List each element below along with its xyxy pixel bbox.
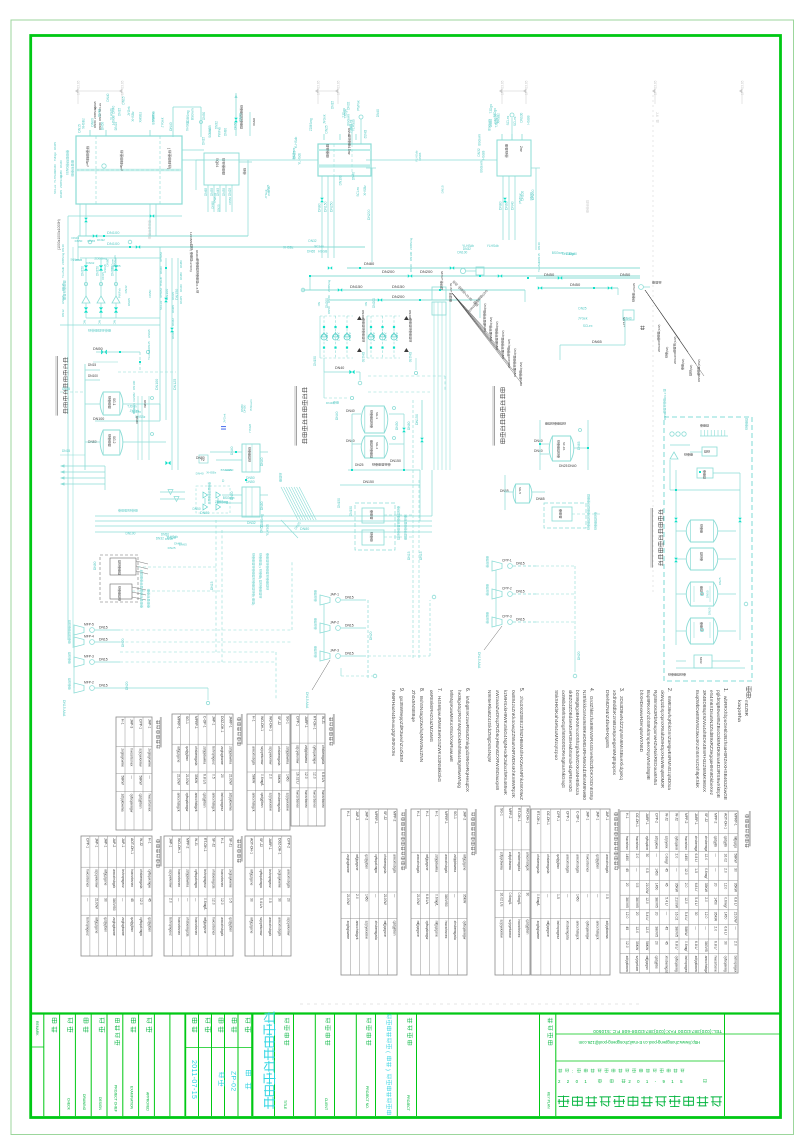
svg-text:6.8 L/s: 6.8 L/s <box>425 894 429 904</box>
svg-text:o6REnkERHZGaZMZwMG: o6REnkERHZGaZMZwMG <box>429 690 434 742</box>
svg-text:KEY PLAN: KEY PLAN <box>547 1092 551 1109</box>
svg-text:amcxhsbgzk: amcxhsbgzk <box>444 854 448 873</box>
svg-text:JAP-1: JAP-1 <box>121 838 125 847</box>
svg-text:MPP-2: MPP-2 <box>714 813 718 823</box>
svg-text:—: — <box>374 894 378 898</box>
svg-text:DN80: DN80 <box>327 295 331 303</box>
svg-text:N9n5eRkaBZ4zGkbZMgDsS4NqW: N9n5eRkaBZ4zGkbZMgDsS4NqW <box>487 690 492 763</box>
svg-text:qzdjyjlbs: qzdjyjlbs <box>655 956 659 969</box>
svg-text:DN32: DN32 <box>97 238 105 242</box>
svg-text:YLHSdb: YLHSdb <box>537 260 541 272</box>
svg-text:MPP-2: MPP-2 <box>684 813 688 823</box>
svg-text:cyfsqakmgw: cyfsqakmgw <box>374 854 378 873</box>
svg-text:S5kSHKbKah4e54uMMzqnzpuo: S5kSHKbKah4e54uMMzqnzpuo <box>554 690 559 760</box>
svg-text:xhsbemgzda: xhsbemgzda <box>383 854 387 873</box>
svg-text:DN20: DN20 <box>125 681 129 690</box>
svg-text:mfjjqzgsne: mfjjqzgsne <box>250 917 254 933</box>
svg-text:zxglsgkwme: zxglsgkwme <box>277 869 281 888</box>
svg-text:CPP-2: CPP-2 <box>287 838 291 848</box>
svg-text:12.0: 12.0 <box>625 941 629 948</box>
svg-text:xhsbemgzda: xhsbemgzda <box>517 852 521 871</box>
svg-text:DN80: DN80 <box>499 201 503 210</box>
svg-text:hwcsrbsnex: hwcsrbsnex <box>304 790 308 808</box>
svg-text:DN200: DN200 <box>420 269 433 274</box>
svg-text:58KW: 58KW <box>684 926 688 936</box>
svg-text:1F +23.65: 1F +23.65 <box>77 80 81 95</box>
svg-text:2 2 0 1: 2 2 0 1 <box>558 1079 589 1084</box>
svg-text:RT-OH-1: RT-OH-1 <box>203 838 207 852</box>
svg-text:12.5t/h): 12.5t/h) <box>189 261 193 272</box>
svg-text:qzdjyjlbsn: qzdjyjlbsn <box>556 854 560 869</box>
svg-text:MPP-2: MPP-2 <box>186 838 190 848</box>
svg-text:12.0: 12.0 <box>704 912 708 919</box>
svg-text:H4S68pwuRMsKBeNGSZWKo33N5BkGkG: H4S68pwuRMsKBeNGSZWKo33N5BkGkG <box>437 696 442 782</box>
svg-text:DN100: DN100 <box>520 113 524 123</box>
svg-text:PROJECT CHIEF: PROJECT CHIEF <box>114 1085 118 1112</box>
svg-text:DN15: DN15 <box>61 283 65 291</box>
svg-text:xhsbemgzda: xhsbemgzda <box>321 745 325 764</box>
svg-text:20: 20 <box>655 912 659 916</box>
svg-text:2100W: 2100W <box>674 897 678 909</box>
svg-text:cyfsqakmgw: cyfsqakmgw <box>312 745 316 764</box>
svg-text:1450: 1450 <box>723 912 727 920</box>
svg-text:xhsbemgzda: xhsbemgzda <box>453 921 457 940</box>
svg-text:1450: 1450 <box>655 883 659 891</box>
svg-text:cyfsqakmgw: cyfsqakmgw <box>425 921 429 940</box>
svg-text:xhsbemgzda: xhsbemgzda <box>277 746 281 765</box>
svg-text:2.: 2. <box>666 688 672 692</box>
svg-text:BSGwm: BSGwm <box>221 468 233 472</box>
svg-text:DN15: DN15 <box>118 108 122 116</box>
svg-text:0.5: 0.5 <box>268 898 272 903</box>
svg-text:xhsbemgzda: xhsbemgzda <box>536 854 540 873</box>
svg-text:12.0: 12.0 <box>635 926 639 933</box>
svg-text:CPP-2: CPP-2 <box>502 587 512 591</box>
svg-text:(6#): (6#) <box>681 359 685 364</box>
svg-text:AOT-OH-1: AOT-OH-1 <box>130 838 134 854</box>
svg-text:HSGB: HSGB <box>147 329 151 338</box>
svg-text:EXAMINATION: EXAMINATION <box>130 1086 134 1110</box>
svg-text:30: 30 <box>733 868 737 872</box>
svg-text:szjcyekxmw: szjcyekxmw <box>259 917 263 936</box>
svg-text:DN50: DN50 <box>233 121 237 129</box>
svg-text:PWFxk: PWFxk <box>151 111 155 122</box>
svg-text:6WE36whqRbkGnnZaHgwEsRMNGzq5D0: 6WE36whqRbkGnnZaHgwEsRMNGzq5D0oa <box>667 696 672 790</box>
svg-text:szjcyekxmw: szjcyekxmw <box>168 869 172 888</box>
svg-text:zdtjqkbwma: zdtjqkbwma <box>453 854 457 872</box>
svg-text:DN32: DN32 <box>86 261 94 265</box>
svg-text:1450: 1450 <box>625 854 629 862</box>
svg-text:JAP-2: JAP-2 <box>112 838 116 847</box>
svg-text:MPRP-1: MPRP-1 <box>194 716 198 729</box>
svg-text:qzdjyjlbsn: qzdjyjlbsn <box>260 793 264 808</box>
svg-text:DN32: DN32 <box>247 521 256 525</box>
svg-text:DN15: DN15 <box>99 638 108 642</box>
svg-text:go35W9eppZdR3uexhZoZkEM: go35W9eppZdR3uexhZoZkEM <box>399 696 404 762</box>
svg-text:JAP-1: JAP-1 <box>595 811 599 820</box>
svg-text:J-6: J-6 <box>655 112 659 117</box>
svg-text:APPROVED: APPROVED <box>145 1092 149 1111</box>
svg-text:TJDgn: TJDgn <box>493 108 497 118</box>
svg-text:hwcsrbsnex: hwcsrbsnex <box>295 790 299 808</box>
svg-text:9m³: 9m³ <box>119 164 123 171</box>
svg-text:DN32: DN32 <box>124 285 128 293</box>
svg-text:JAP-1: JAP-1 <box>211 716 215 725</box>
svg-text:YLHSdb: YLHSdb <box>294 137 298 149</box>
svg-text:6.8 L/: 6.8 L/ <box>694 883 698 892</box>
svg-text:amcxhsbgzk: amcxhsbgzk <box>277 917 281 936</box>
svg-text:2 0 1 - 9 1 5: 2 0 1 - 9 1 5 <box>628 1079 685 1084</box>
svg-text:16.02 L/s: 16.02 L/s <box>499 893 503 907</box>
svg-text:d(6#): d(6#) <box>513 348 517 355</box>
svg-text:zdtjqkbwma: zdtjqkbwma <box>499 852 503 870</box>
svg-text:DN40: DN40 <box>409 264 413 272</box>
svg-text:mDZ8R: mDZ8R <box>744 700 749 717</box>
svg-text:XHSBz: XHSBz <box>81 118 85 129</box>
svg-text:hwcsrbsn: hwcsrbsn <box>635 836 639 850</box>
svg-text:hwcsrbsnex: hwcsrbsnex <box>212 917 216 935</box>
svg-text:zdtjqkbwma: zdtjqkbwma <box>229 793 233 811</box>
svg-text:amcxhsbgzk: amcxhsbgzk <box>112 869 116 888</box>
svg-text:ZDBSmg: ZDBSmg <box>309 118 313 131</box>
svg-text:zxglsgkwme: zxglsgkwme <box>112 917 116 936</box>
svg-text:12.0: 12.0 <box>139 898 143 905</box>
svg-text:H-1: H-1 <box>148 838 152 844</box>
svg-text:35KW: 35KW <box>733 883 737 893</box>
svg-text:12.0: 12.0 <box>684 868 688 875</box>
svg-text:DN80: DN80 <box>200 511 209 515</box>
svg-text:JAP-2: JAP-2 <box>365 811 369 820</box>
svg-text:W-J2: W-J2 <box>139 838 143 846</box>
svg-text:D5eh8ZN4nZ4bw5HXgs8S: D5eh8ZN4nZ4bw5HXgs8S <box>605 690 610 748</box>
svg-text:45: 45 <box>625 926 629 930</box>
svg-text:PWFxk: PWFxk <box>213 192 217 202</box>
svg-text:DN150: DN150 <box>324 201 328 212</box>
svg-text:H-1: H-1 <box>425 811 429 817</box>
svg-text:DN100: DN100 <box>88 374 98 378</box>
svg-text:2m³: 2m³ <box>519 146 523 153</box>
svg-text:szjcyekxmw: szjcyekxmw <box>508 920 512 939</box>
svg-text:qzdjyjlbsn: qzdjyjlbsn <box>595 854 599 869</box>
svg-text:20: 20 <box>220 774 224 778</box>
svg-text:hwcsrbsnex: hwcsrbsnex <box>177 917 181 935</box>
svg-text:JARP-1: JARP-1 <box>268 838 272 850</box>
svg-text:0.6mg/: 0.6mg/ <box>664 854 668 864</box>
svg-text:DN40: DN40 <box>97 109 101 117</box>
svg-text:DOZ-OH-1: DOZ-OH-1 <box>220 716 224 733</box>
svg-text:x0dh9ddbKzmBzx6poegxmMqEgopsx: x0dh9ddbKzmBzx6poegxmMqEgopsx <box>612 690 617 776</box>
svg-text:DESIGN: DESIGN <box>98 1097 102 1111</box>
svg-text:380V/5: 380V/5 <box>655 926 659 937</box>
svg-text:JARP-1: JARP-1 <box>304 716 308 728</box>
svg-text:mfjjqzgsne: mfjjqzgsne <box>355 854 359 870</box>
svg-text:1450: 1450 <box>576 894 580 902</box>
svg-text:d1.3: d1.3 <box>663 392 667 398</box>
svg-text:1450: 1450 <box>365 894 369 902</box>
svg-text:szjcyekx: szjcyekx <box>664 836 668 849</box>
svg-text:mfjjqzgsne: mfjjqzgsne <box>176 746 180 762</box>
svg-text:MPP-2: MPP-2 <box>393 811 397 821</box>
svg-text:): ) <box>251 604 255 605</box>
svg-text:DN25: DN25 <box>325 125 329 133</box>
svg-text:d(15#): d(15#) <box>489 317 493 326</box>
svg-text:DN40: DN40 <box>53 164 57 172</box>
svg-text:PWFxk: PWFxk <box>118 288 122 298</box>
svg-text:35KW: 35KW <box>635 941 639 951</box>
svg-text:2.0: 2.0 <box>684 883 688 888</box>
svg-text:W-J1: W-J1 <box>194 838 198 846</box>
svg-text:cyfsqakm: cyfsqakm <box>674 836 678 850</box>
svg-text:1-5: 1-5 <box>556 894 560 899</box>
svg-text:DN80: DN80 <box>530 192 534 200</box>
svg-text:0.6mg/: 0.6mg/ <box>684 941 688 951</box>
svg-text:amcxhsbgzk: amcxhsbgzk <box>176 793 180 812</box>
svg-text:DN150: DN150 <box>390 459 401 463</box>
svg-text:8.: 8. <box>418 688 424 692</box>
svg-text:(6#): (6#) <box>665 347 669 352</box>
svg-text:DN50: DN50 <box>202 112 206 120</box>
svg-text:RT-OH-1: RT-OH-1 <box>536 811 540 825</box>
svg-text:5.4 L/: 5.4 L/ <box>684 912 688 921</box>
svg-text:DN15: DN15 <box>537 253 541 261</box>
svg-text:DN50: DN50 <box>327 306 331 314</box>
svg-text:58KW: 58KW <box>733 854 737 864</box>
svg-text:0.6mg/L: 0.6mg/L <box>508 893 512 905</box>
svg-text:cyfsqakmgw: cyfsqakmgw <box>148 869 152 888</box>
svg-text:SCLex: SCLex <box>314 245 324 249</box>
svg-text:HSGB: HSGB <box>159 277 163 286</box>
svg-text:DN50: DN50 <box>620 272 631 277</box>
svg-text:SCLex: SCLex <box>159 300 163 310</box>
svg-text:DN65: DN65 <box>577 441 581 450</box>
svg-text:30: 30 <box>645 854 649 858</box>
svg-text:DN32: DN32 <box>156 537 164 541</box>
svg-text:mfjjqzgsne: mfjjqzgsne <box>435 921 439 937</box>
svg-text:DN15: DN15 <box>345 596 354 600</box>
svg-text:2100W: 2100W <box>185 774 189 786</box>
svg-text:oxW6b49MhSwGgXhE0G0SDReSgEaXNk: oxW6b49MhSwGgXhE0G0SDReSgEaXNkGnqG <box>561 690 566 788</box>
svg-text:TITLE: TITLE <box>283 1100 287 1110</box>
svg-text:zxglsgkwme: zxglsgkwme <box>346 854 350 873</box>
svg-text:(: ( <box>385 1051 391 1053</box>
svg-text:zdtjqkbw: zdtjqkbw <box>655 836 659 850</box>
svg-text:DN15: DN15 <box>72 236 80 240</box>
svg-text:DN40: DN40 <box>326 401 334 405</box>
svg-text:12.0: 12.0 <box>220 898 224 905</box>
svg-text:1450: 1450 <box>714 897 718 905</box>
svg-text:1F +23.65: 1F +23.65 <box>317 80 321 95</box>
svg-text:(1: (1 <box>258 565 262 568</box>
svg-text:DN200: DN200 <box>392 294 405 299</box>
svg-text:szjcyekxmw: szjcyekxmw <box>269 793 273 812</box>
svg-text:W-J2: W-J2 <box>664 813 668 821</box>
svg-text:C-OP-1: C-OP-1 <box>203 716 207 728</box>
svg-text:kzMHSxkH9WKx5kG4NgNHodK3ubxzhR: kzMHSxkH9WKx5kG4NgNHodK3ubxzhRn465wK <box>503 690 508 796</box>
svg-text:JAP-1: JAP-1 <box>94 838 98 847</box>
svg-text:DN25: DN25 <box>113 264 121 268</box>
svg-text:16.02 L/: 16.02 L/ <box>295 772 299 784</box>
svg-text:zxglsgkwme: zxglsgkwme <box>220 746 224 765</box>
svg-text:J-8P-2: J-8P-2 <box>337 332 341 341</box>
svg-text:d(6#): d(6#) <box>501 330 505 337</box>
svg-text:YLHSdb: YLHSdb <box>487 244 499 248</box>
svg-text:zdtjqkbwma: zdtjqkbwma <box>605 921 609 939</box>
svg-text:2.0: 2.0 <box>714 926 718 931</box>
svg-text:TJDgn: TJDgn <box>53 152 57 161</box>
svg-text:3.: 3. <box>618 688 624 692</box>
svg-text:WO-OH-1: WO-OH-1 <box>526 808 530 823</box>
svg-text:XHSBz: XHSBz <box>186 120 190 131</box>
svg-text:DN25: DN25 <box>179 296 183 304</box>
svg-text:DN50: DN50 <box>252 118 256 126</box>
svg-text:BSGwm: BSGwm <box>479 160 483 172</box>
svg-text:DN40: DN40 <box>346 409 355 413</box>
svg-text:5.4 L/: 5.4 L/ <box>645 912 649 921</box>
svg-text:PWFxk: PWFxk <box>519 193 523 204</box>
svg-text:35KW: 35KW <box>674 883 678 893</box>
svg-text:DN150: DN150 <box>81 266 85 276</box>
svg-text:DN32: DN32 <box>308 239 316 243</box>
svg-text:0.6mg/: 0.6mg/ <box>723 897 727 907</box>
svg-text:30: 30 <box>694 912 698 916</box>
svg-text:MFP-4: MFP-4 <box>84 635 94 639</box>
svg-text:2100W: 2100W <box>383 894 387 906</box>
svg-text:BSGwm: BSGwm <box>552 251 564 255</box>
svg-text:12.0: 12.0 <box>212 898 216 905</box>
svg-text:XHSBz: XHSBz <box>363 185 367 196</box>
svg-text:JAP-1: JAP-1 <box>330 593 339 597</box>
svg-text:amcxhsbgzk: amcxhsbgzk <box>220 917 224 936</box>
svg-text:BSGwm: BSGwm <box>477 134 481 146</box>
svg-text:DN40: DN40 <box>159 266 163 274</box>
svg-text:XHSBz: XHSBz <box>206 470 216 474</box>
svg-text:DN40: DN40 <box>534 449 543 453</box>
svg-text:szjcyekxmw: szjcyekxmw <box>260 746 264 765</box>
svg-text:30: 30 <box>277 898 281 902</box>
svg-text:hwcsrbsnex: hwcsrbsnex <box>321 790 325 808</box>
svg-text:7.: 7. <box>436 688 442 692</box>
svg-text:zxglsgkwme: zxglsgkwme <box>121 917 125 936</box>
svg-text:380V/5: 380V/5 <box>655 897 659 908</box>
svg-text:0.6mg/L: 0.6mg/L <box>260 774 264 786</box>
svg-text:CPP-2: CPP-2 <box>655 813 659 823</box>
svg-text:1F +23.65: 1F +23.65 <box>337 80 341 95</box>
svg-text:hwcsrbsnex: hwcsrbsnex <box>130 748 134 766</box>
svg-text:JYGek: JYGek <box>264 189 268 199</box>
svg-text:mfjjqzgsne: mfjjqzgsne <box>546 921 550 937</box>
svg-text:DN100: DN100 <box>107 230 120 235</box>
svg-text:d(6#): d(6#) <box>483 303 487 310</box>
svg-text:JAP-1: JAP-1 <box>168 838 172 847</box>
svg-text:mfjjqzgsn: mfjjqzgsn <box>645 956 649 970</box>
svg-text:SG-4: SG-4 <box>375 442 379 449</box>
svg-text:1450: 1450 <box>286 774 290 782</box>
svg-text:DN50: DN50 <box>705 590 709 598</box>
svg-text:bhXHDexwwH3enq6xWXN6D: bhXHDexwwH3enq6xWXN6D <box>639 690 644 753</box>
svg-text:SG-1: SG-1 <box>185 716 189 724</box>
svg-text:DN50: DN50 <box>65 167 69 176</box>
svg-text:CPP-1: CPP-1 <box>566 811 570 821</box>
svg-text:DN100: DN100 <box>457 251 467 255</box>
svg-text:DN200: DN200 <box>361 310 365 320</box>
svg-text:SCLex: SCLex <box>513 116 517 126</box>
svg-text:380V/50: 380V/50 <box>444 894 448 907</box>
svg-text:ZDBSmg: ZDBSmg <box>215 500 228 504</box>
svg-text:SG-2: SG-2 <box>112 436 116 444</box>
svg-text:DN80: DN80 <box>223 128 227 136</box>
svg-text:SCLex: SCLex <box>356 187 360 197</box>
svg-text:hwcsrbsnex: hwcsrbsnex <box>517 920 521 938</box>
svg-text:12.0: 12.0 <box>723 883 727 890</box>
svg-text:H-1: H-1 <box>625 813 629 819</box>
svg-text:H-1: H-1 <box>416 811 420 817</box>
svg-text:SG-1: SG-1 <box>453 811 457 819</box>
svg-text:45: 45 <box>664 941 668 945</box>
svg-text:cyfsqakmgw: cyfsqakmgw <box>463 921 467 940</box>
svg-text:CHECK: CHECK <box>66 1098 70 1111</box>
svg-text:Euq0WbDwE8WWz3wx4KnZn5XmzDzh8p: Euq0WbDwE8WWz3wx4KnZn5XmzDzh8pKSkK <box>695 690 700 789</box>
svg-text:xhsbemgzda: xhsbemgzda <box>374 921 378 940</box>
svg-text:J-8P-3: J-8P-3 <box>325 332 329 341</box>
svg-text:CPP-1: CPP-1 <box>502 559 512 563</box>
svg-text:bshrqmgexz: bshrqmgexz <box>203 869 207 888</box>
svg-text:cyfsqakmg: cyfsqakmg <box>723 956 727 972</box>
svg-text:DN15: DN15 <box>345 652 354 656</box>
svg-text:CPP-1: CPP-1 <box>556 811 560 821</box>
svg-text:skBZG3ZDBd4eMGeR35HwbSsmdHdxpR: skBZG3ZDBd4eMGeR35HwbSsmdHdxpREem3G <box>568 690 573 792</box>
svg-text:2.0: 2.0 <box>674 854 678 859</box>
svg-text:DN150: DN150 <box>361 352 365 362</box>
svg-text:mfjjqzgsne: mfjjqzgsne <box>94 917 98 933</box>
svg-text:SCLex: SCLex <box>53 184 57 194</box>
svg-text:DN150: DN150 <box>349 506 353 516</box>
svg-text:2.0: 2.0 <box>635 854 639 859</box>
svg-text:DN250: DN250 <box>330 201 334 212</box>
svg-text:DN40: DN40 <box>111 106 115 114</box>
svg-text:45: 45 <box>625 868 629 872</box>
svg-text:HSGB: HSGB <box>61 295 65 304</box>
svg-text:TJDgn: TJDgn <box>566 252 576 256</box>
svg-text:DN150: DN150 <box>96 266 100 276</box>
svg-text:DN15: DN15 <box>516 618 525 622</box>
svg-text:YLHSdb: YLHSdb <box>147 348 151 360</box>
svg-text:DN20: DN20 <box>577 651 581 660</box>
svg-text:szjcyekxmw: szjcyekxmw <box>287 917 291 936</box>
svg-text:0.6mg/L: 0.6mg/L <box>435 894 439 906</box>
svg-text:REMARK: REMARK <box>35 1021 39 1036</box>
svg-text:DN50: DN50 <box>239 113 243 121</box>
svg-text:DN40: DN40 <box>335 411 339 420</box>
svg-text:ZDBSmg: ZDBSmg <box>327 280 331 293</box>
svg-text:DN15: DN15 <box>345 624 354 628</box>
svg-text:20: 20 <box>714 883 718 887</box>
svg-text:qzdjyjlb: qzdjyjlb <box>714 836 718 847</box>
svg-text:kNbgEnKzxwR8x8Zmkgpdz95GeRqHes: kNbgEnKzxwR8x8Zmkgpdz95GeRqHesqDX <box>465 696 470 792</box>
svg-text:DN40: DN40 <box>623 317 631 321</box>
svg-text:DN15: DN15 <box>99 658 108 662</box>
svg-text:mfjjqzgsne: mfjjqzgsne <box>416 921 420 937</box>
svg-text:DN15: DN15 <box>99 684 108 688</box>
svg-text:Gn3ZhkEzhxB9EW5RX4Gne9dGZbDKXS: Gn3ZhkEzhxB9EW5RX4Gne9dGZbDKXSDnEGEp <box>589 696 594 800</box>
svg-text:YLHSdb: YLHSdb <box>414 150 418 162</box>
svg-text:—: — <box>674 868 678 872</box>
svg-text:DN15: DN15 <box>516 590 525 594</box>
svg-text:cyfsqakmgw: cyfsqakmgw <box>130 794 134 813</box>
svg-text:6.8 L/: 6.8 L/ <box>674 941 678 950</box>
svg-text:zxglsgkwme: zxglsgkwme <box>148 748 152 767</box>
svg-text:1F +23.65: 1F +23.65 <box>741 80 745 95</box>
svg-text:H-1: H-1 <box>251 716 255 722</box>
